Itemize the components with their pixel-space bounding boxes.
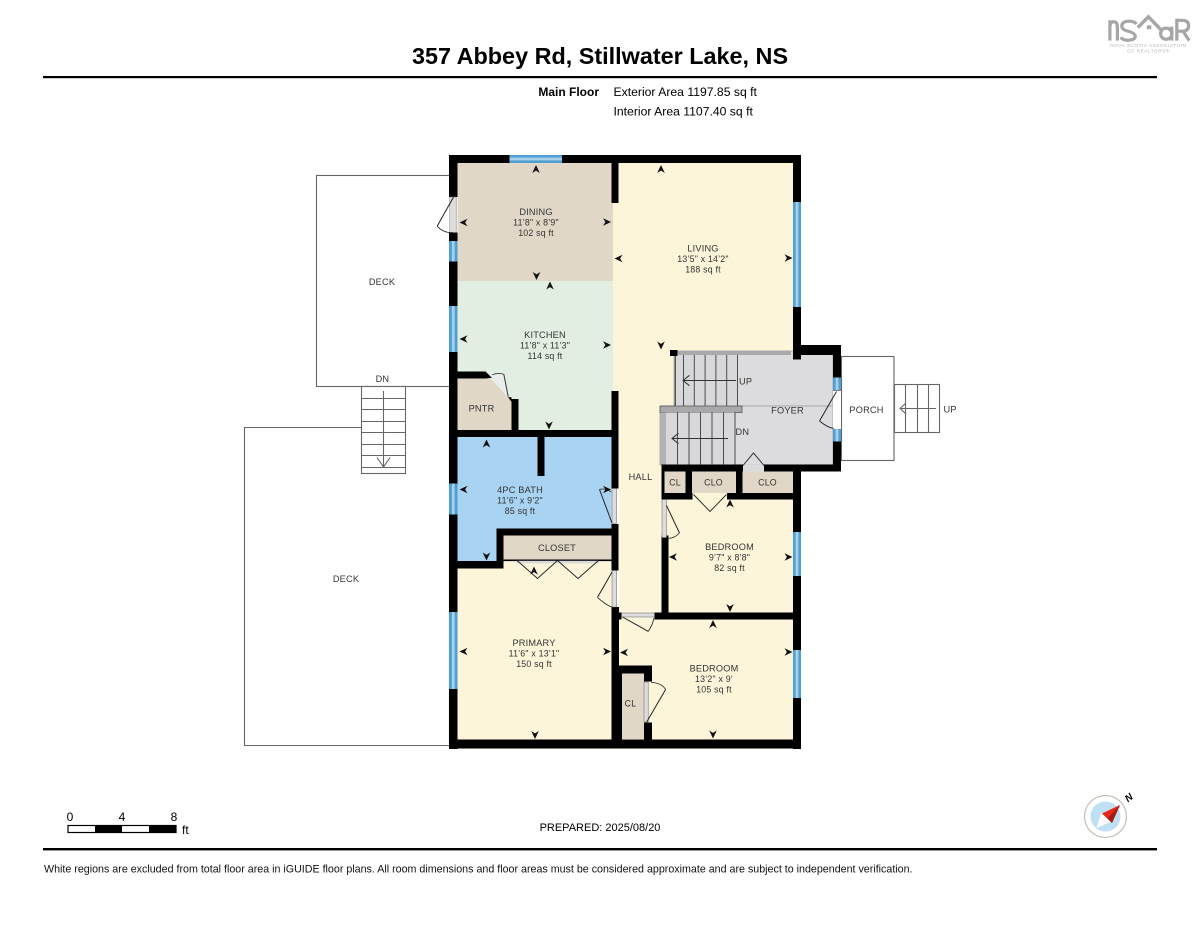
svg-text:HALL: HALL bbox=[629, 472, 653, 482]
svg-text:UP: UP bbox=[739, 377, 752, 387]
svg-text:0: 0 bbox=[67, 810, 74, 824]
svg-text:11’8" x 11’3": 11’8" x 11’3" bbox=[520, 341, 570, 351]
svg-text:CLO: CLO bbox=[704, 478, 723, 488]
svg-text:188 sq ft: 188 sq ft bbox=[685, 265, 721, 275]
svg-text:PRIMARY: PRIMARY bbox=[512, 638, 555, 648]
svg-text:Main Floor: Main Floor bbox=[538, 85, 599, 99]
svg-text:DINING: DINING bbox=[519, 207, 552, 217]
svg-text:4PC BATH: 4PC BATH bbox=[497, 485, 543, 495]
svg-text:150 sq ft: 150 sq ft bbox=[516, 659, 552, 669]
svg-text:BEDROOM: BEDROOM bbox=[690, 664, 739, 674]
svg-text:85 sq ft: 85 sq ft bbox=[505, 506, 536, 516]
svg-text:PNTR: PNTR bbox=[469, 404, 495, 414]
svg-text:DN: DN bbox=[736, 427, 750, 437]
svg-text:4: 4 bbox=[119, 810, 126, 824]
svg-text:CL: CL bbox=[625, 699, 637, 709]
svg-text:LIVING: LIVING bbox=[687, 244, 718, 254]
svg-text:8: 8 bbox=[171, 810, 178, 824]
svg-text:DECK: DECK bbox=[369, 277, 396, 287]
svg-text:13’5" x 14’2": 13’5" x 14’2" bbox=[677, 254, 728, 264]
svg-text:114 sq ft: 114 sq ft bbox=[528, 351, 563, 361]
svg-text:PORCH: PORCH bbox=[849, 405, 883, 415]
svg-text:FOYER: FOYER bbox=[771, 406, 804, 416]
svg-text:DECK: DECK bbox=[333, 574, 360, 584]
svg-text:OF REALTORS®: OF REALTORS® bbox=[1127, 47, 1170, 53]
svg-text:11’6" x 13’1": 11’6" x 13’1" bbox=[509, 649, 560, 659]
svg-text:11’6" x 9’2": 11’6" x 9’2" bbox=[497, 496, 543, 506]
svg-text:82 sq ft: 82 sq ft bbox=[714, 563, 745, 573]
svg-text:Exterior Area 1197.85 sq ft: Exterior Area 1197.85 sq ft bbox=[614, 85, 758, 99]
svg-text:105 sq ft: 105 sq ft bbox=[696, 685, 732, 695]
svg-text:11’8" x 8’9": 11’8" x 8’9" bbox=[513, 218, 559, 228]
svg-text:PREPARED: 2025/08/20: PREPARED: 2025/08/20 bbox=[540, 822, 661, 834]
svg-text:102 sq ft: 102 sq ft bbox=[518, 228, 554, 238]
svg-text:Interior Area 1107.40 sq ft: Interior Area 1107.40 sq ft bbox=[614, 105, 754, 119]
svg-text:CLOSET: CLOSET bbox=[538, 543, 576, 553]
svg-text:UP: UP bbox=[944, 405, 957, 415]
svg-text:KITCHEN: KITCHEN bbox=[524, 330, 566, 340]
svg-text:13’2" x 9’: 13’2" x 9’ bbox=[695, 674, 733, 684]
svg-text:CL: CL bbox=[669, 478, 681, 488]
svg-text:NOVA SCOTIA ASSOCIATION: NOVA SCOTIA ASSOCIATION bbox=[1110, 43, 1186, 48]
svg-text:White regions are excluded fro: White regions are excluded from total fl… bbox=[44, 864, 913, 876]
svg-text:BEDROOM: BEDROOM bbox=[705, 542, 754, 552]
svg-text:DN: DN bbox=[376, 374, 390, 384]
svg-text:357 Abbey Rd, Stillwater Lake,: 357 Abbey Rd, Stillwater Lake, NS bbox=[412, 43, 788, 69]
svg-text:9’7" x 8’8": 9’7" x 8’8" bbox=[709, 553, 750, 563]
svg-text:CLO: CLO bbox=[758, 478, 777, 488]
svg-text:ft: ft bbox=[182, 823, 189, 837]
